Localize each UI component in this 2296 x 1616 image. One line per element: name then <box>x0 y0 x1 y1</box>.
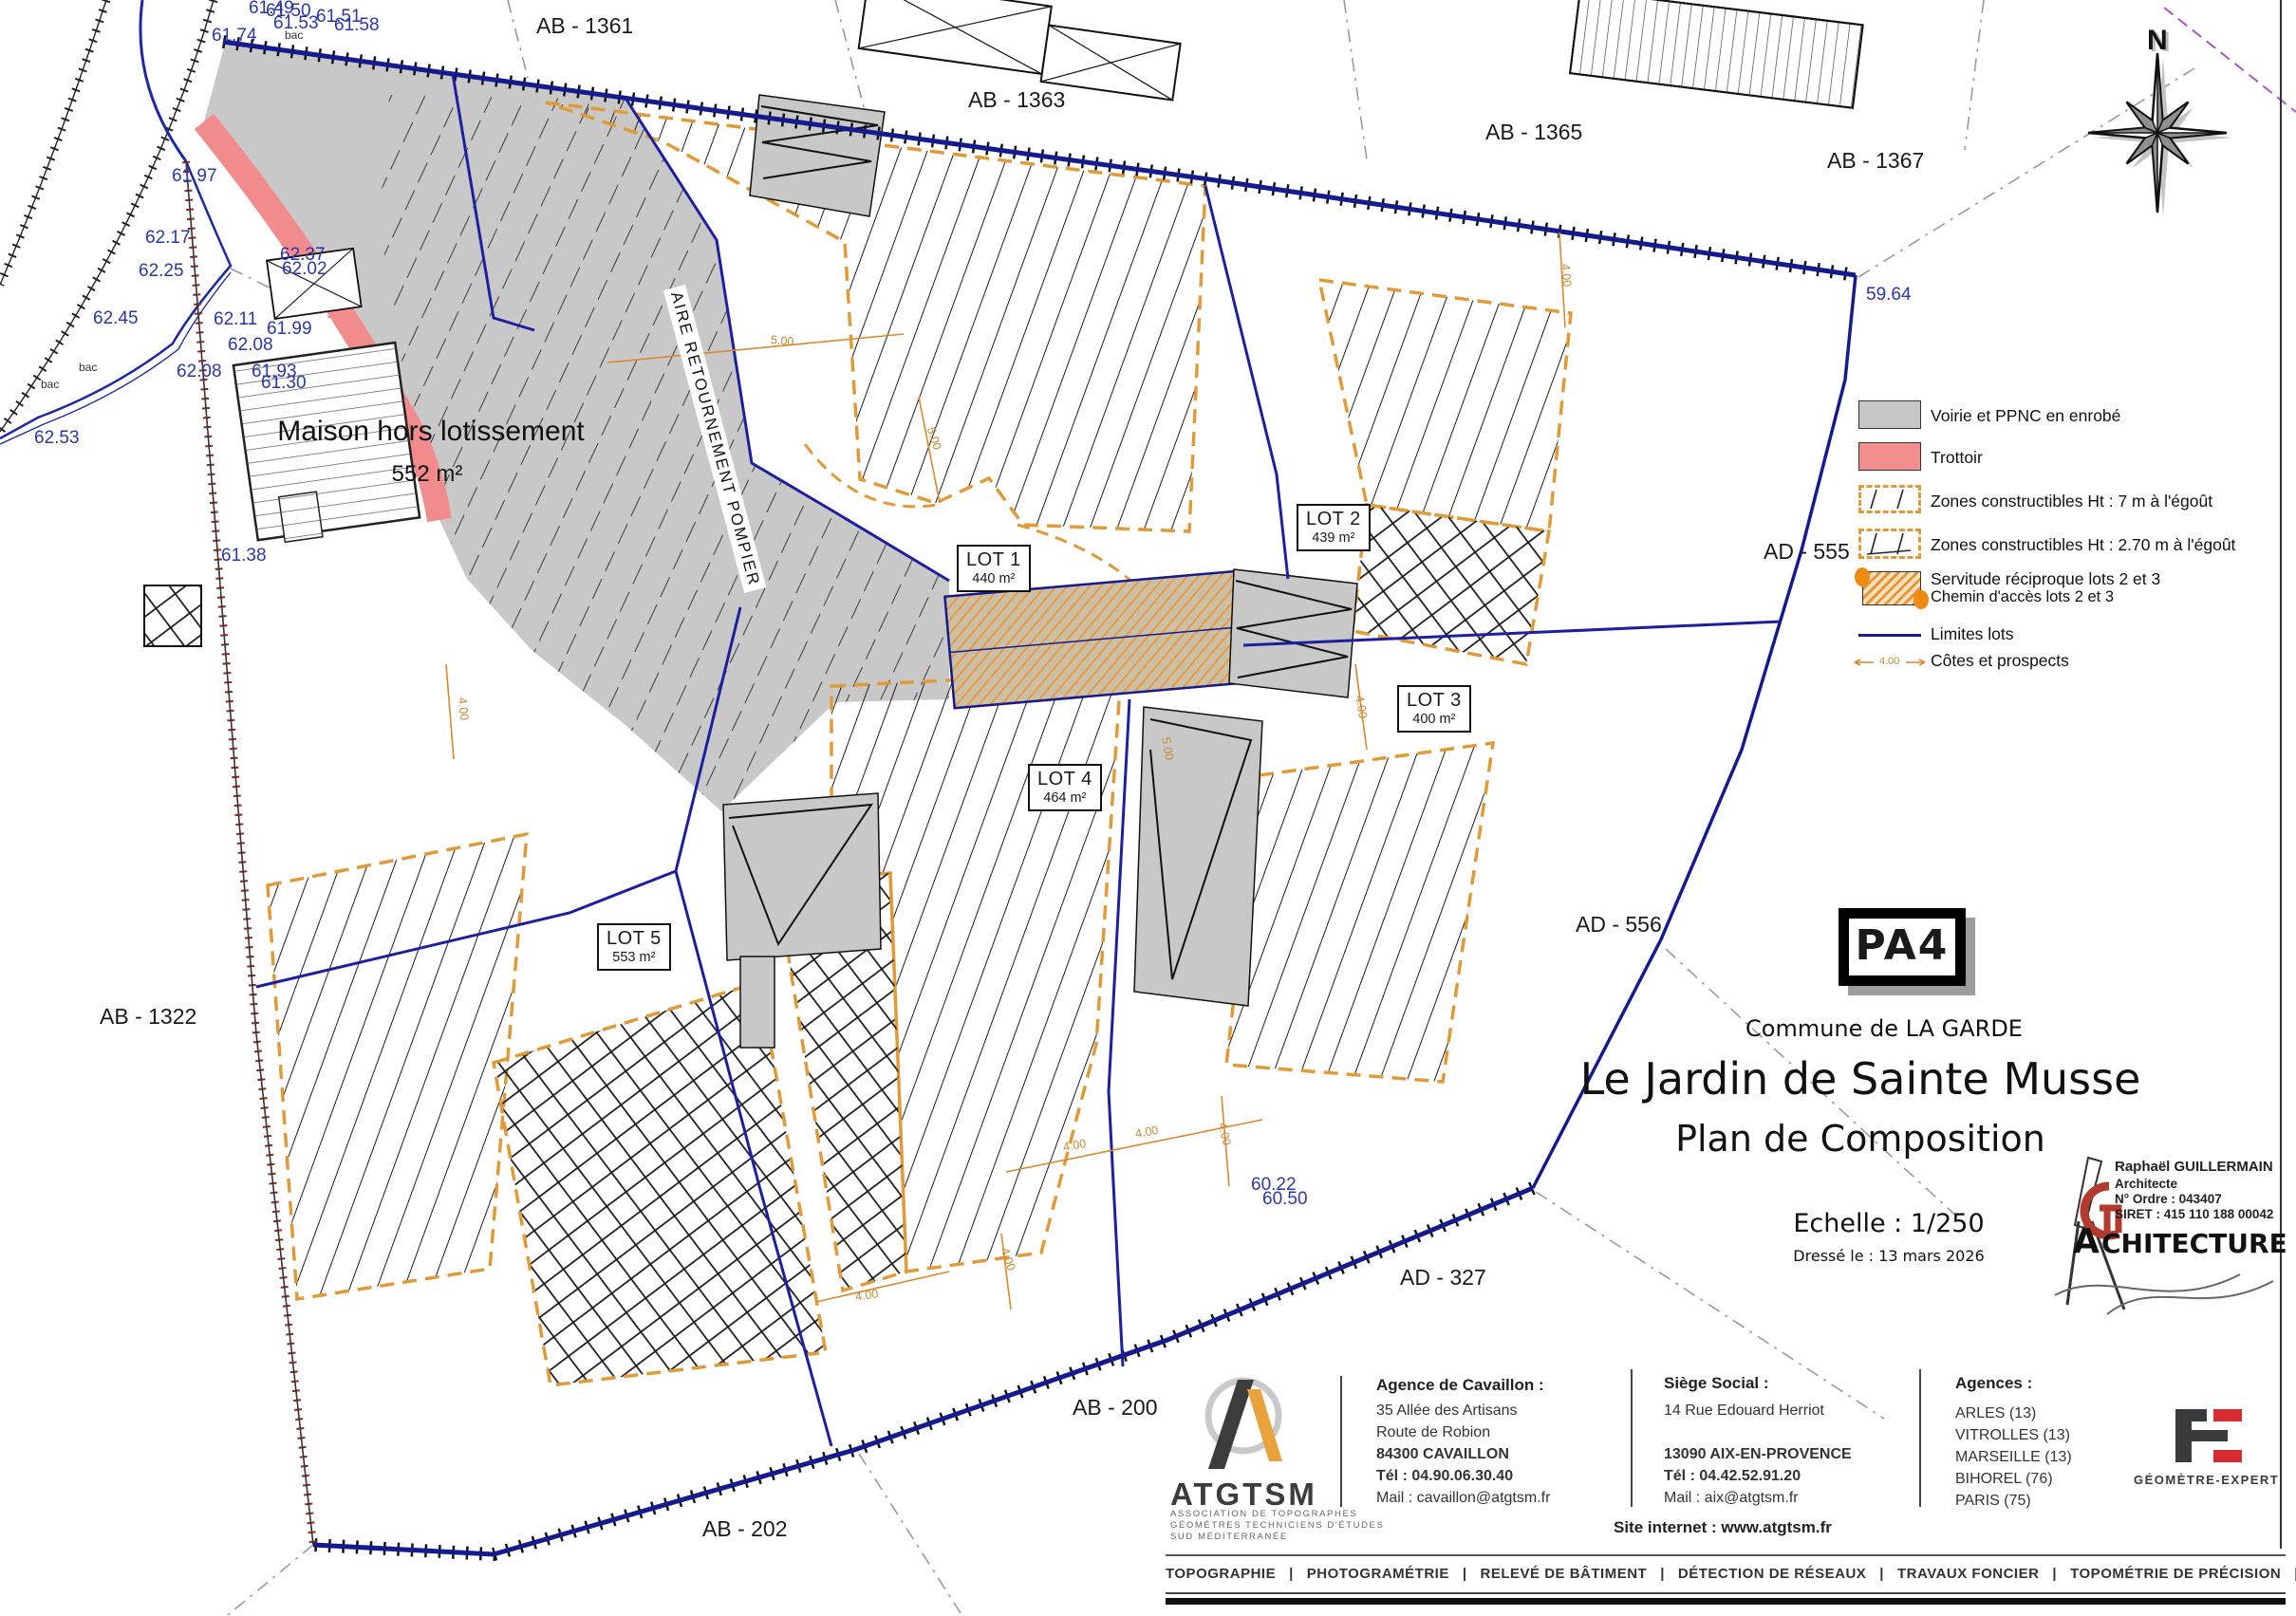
lot5-name: LOT 5 <box>607 928 662 950</box>
elevation-point: 61.97 <box>172 166 217 187</box>
site-plan-drawing <box>0 0 2296 1616</box>
lot5-label: LOT 5 553 m² <box>597 923 671 971</box>
atgtsm-logo-icon <box>1188 1374 1302 1480</box>
lot4-name: LOT 4 <box>1037 769 1092 790</box>
date-label: Dressé le : 13 mars 2026 <box>1699 1247 2079 1265</box>
maison-hors-lotissement-label: Maison hors lotissement <box>254 416 607 448</box>
parcel-label-ab202: AB - 202 <box>702 1516 788 1542</box>
plan-title: Le Jardin de Sainte Musse <box>1533 1053 2188 1105</box>
north-letter: N <box>2147 25 2168 57</box>
legend-swatch-limites <box>1858 634 1921 637</box>
building-ab1363 <box>858 0 1184 100</box>
siege-line3: Tél : 04.42.52.91.20 <box>1664 1468 1801 1485</box>
legend-swatch-zone7 <box>1858 485 1921 513</box>
servitude-dot-icon <box>1913 590 1929 609</box>
dim-label: 4.00 <box>1559 263 1574 287</box>
agences-line2: VITROLLES (13) <box>1955 1427 2070 1444</box>
elevation-point: 61.58 <box>334 15 380 36</box>
legend-label-cotes: Côtes et prospects <box>1931 651 2069 671</box>
atgtsm-sub1: ASSOCIATION DE TOPOGRAPHES <box>1170 1509 1357 1519</box>
architect-name: Raphaël GUILLERMAIN <box>2115 1159 2273 1175</box>
maison-area-label: 552 m² <box>351 461 503 488</box>
legend-cotes-dim: 4.00 <box>1879 656 1899 667</box>
architect-siret: SIRET : 415 110 188 00042 <box>2115 1207 2273 1221</box>
services-bar: TOPOGRAPHIE | PHOTOGRAMÉTRIE | RELEVÉ DE… <box>1166 1554 2286 1592</box>
legend-label-servitude-1: Servitude réciproque lots 2 et 3 <box>1931 569 2160 589</box>
parcel-label-ab1322: AB - 1322 <box>100 1004 196 1030</box>
dim-label: 4.00 <box>456 697 471 720</box>
atgtsm-sub3: SUD MÉDITERRANÉE <box>1170 1532 1288 1542</box>
atgtsm-sub2: GÉOMÈTRES TECHNICIENS D'ÉTUDES <box>1170 1520 1384 1531</box>
utility-dashed-line <box>2164 8 2296 112</box>
legend-swatch-voirie <box>1858 400 1921 429</box>
lot2-area: 439 m² <box>1306 530 1361 547</box>
servitude-dot-icon <box>1855 567 1870 586</box>
footer-divider-1 <box>1340 1376 1342 1507</box>
pa4-badge: PA4 <box>1839 908 1966 986</box>
bac-annotation: bac <box>79 361 97 374</box>
cavaillon-line2: Route de Robion <box>1376 1424 1490 1441</box>
hatched-shed <box>144 585 201 646</box>
parcel-label-ab1363: AB - 1363 <box>968 87 1065 113</box>
architect-role: Architecte <box>2115 1177 2177 1191</box>
elevation-point: 62.25 <box>139 261 184 282</box>
footer-divider-2 <box>1631 1369 1633 1507</box>
lot2-label: LOT 2 439 m² <box>1297 504 1371 551</box>
elevation-point: 62.53 <box>34 428 80 449</box>
architecture-brand-a: A <box>2073 1222 2100 1261</box>
commune-label: Commune de LA GARDE <box>1699 1015 2069 1042</box>
bac-annotation: bac <box>285 28 303 42</box>
north-compass-icon <box>2088 53 2232 217</box>
elevation-point: 61.50 <box>266 1 311 22</box>
lot1-name: LOT 1 <box>966 549 1021 571</box>
elevation-point: 61.99 <box>267 319 312 340</box>
elevation-point: 59.64 <box>1866 285 1912 306</box>
cavaillon-line5: Mail : cavaillon@atgtsm.fr <box>1376 1490 1550 1507</box>
siege-line2: 13090 AIX-EN-PROVENCE <box>1664 1446 1852 1463</box>
siege-heading: Siège Social : <box>1664 1374 1769 1393</box>
elevation-point: 62.08 <box>177 362 222 382</box>
building-ab1365 <box>1570 0 1862 108</box>
parcel-label-ad555: AD - 555 <box>1764 539 1850 565</box>
elevation-point: 61.38 <box>221 546 267 567</box>
parcel-label-ab1367: AB - 1367 <box>1827 148 1924 174</box>
lot-boundary-right <box>1533 275 1856 1188</box>
siege-line1: 14 Rue Edouard Herriot <box>1664 1402 1824 1420</box>
legend-swatch-trottoir <box>1858 442 1921 471</box>
agences-line5: PARIS (75) <box>1955 1493 2031 1510</box>
lot2-name: LOT 2 <box>1306 509 1361 530</box>
elevation-point: 60.50 <box>1262 1189 1308 1210</box>
cavaillon-line4: Tél : 04.90.06.30.40 <box>1376 1468 1513 1485</box>
parcel-label-ab1365: AB - 1365 <box>1485 120 1582 145</box>
siege-line4: Mail : aix@atgtsm.fr <box>1664 1490 1799 1507</box>
geometre-expert-text: GÉOMÈTRE-EXPERT <box>2134 1473 2279 1487</box>
legend-label-limites: Limites lots <box>1931 624 2014 644</box>
legend-label-servitude-2: Chemin d'accès lots 2 et 3 <box>1931 588 2114 606</box>
scale-label: Echelle : 1/250 <box>1699 1209 2079 1238</box>
lot3-area: 400 m² <box>1407 712 1462 728</box>
elevation-point: 62.08 <box>228 335 273 356</box>
agences-heading: Agences : <box>1955 1374 2032 1393</box>
architect-ordre: N° Ordre : 043407 <box>2115 1192 2222 1206</box>
cavaillon-line3: 84300 CAVAILLON <box>1376 1446 1509 1463</box>
architecture-brand-rest: CHITECTURE <box>2101 1228 2287 1259</box>
atgtsm-name: ATGTSM <box>1170 1477 1317 1513</box>
dim-label: 5.00 <box>770 333 793 348</box>
legend-label-zone270: Zones constructibles Ht : 2.70 m à l'égo… <box>1931 535 2235 555</box>
elevation-point: 62.17 <box>145 228 191 249</box>
legend-swatch-zone270 <box>1858 529 1921 559</box>
agences-line3: MARSEILLE (13) <box>1955 1449 2072 1466</box>
elevation-point: 61.30 <box>261 373 307 394</box>
lot1-area: 440 m² <box>966 571 1021 587</box>
site-plan-page: AB - 1361 AB - 1363 AB - 1365 AB - 1367 … <box>0 0 2296 1616</box>
agences-line1: ARLES (13) <box>1955 1405 2036 1422</box>
cavaillon-heading: Agence de Cavaillon : <box>1376 1376 1544 1395</box>
geometre-expert-logo-icon <box>2174 1407 2249 1466</box>
site-internet: Site internet : www.atgtsm.fr <box>1614 1518 1832 1537</box>
parcel-label-ab200: AB - 200 <box>1073 1395 1158 1421</box>
agences-line4: BIHOREL (76) <box>1955 1471 2053 1488</box>
parcel-label-ad327: AD - 327 <box>1400 1265 1486 1291</box>
parcel-label-ab1361: AB - 1361 <box>536 13 633 39</box>
footer-divider-3 <box>1919 1369 1921 1507</box>
elevation-point: 62.11 <box>214 309 257 330</box>
legend-label-zone7: Zones constructibles Ht : 7 m à l'égoût <box>1931 492 2212 511</box>
legend-swatch-servitude <box>1862 571 1921 605</box>
lot3-label: LOT 3 400 m² <box>1397 685 1471 733</box>
lot5-area: 553 m² <box>607 950 662 966</box>
parcel-label-ad556: AD - 556 <box>1576 912 1662 938</box>
legend-label-voirie: Voirie et PPNC en enrobé <box>1931 406 2120 426</box>
legend-label-trottoir: Trottoir <box>1931 448 1983 468</box>
elevation-point: 62.45 <box>93 308 139 329</box>
elevation-point: 61.74 <box>212 26 257 46</box>
lot4-area: 464 m² <box>1037 790 1092 807</box>
bac-annotation: bac <box>41 378 59 391</box>
cavaillon-line1: 35 Allée des Artisans <box>1376 1402 1518 1420</box>
services-rule <box>1166 1592 2286 1594</box>
lot3-name: LOT 3 <box>1407 690 1462 712</box>
lot4-label: LOT 4 464 m² <box>1028 764 1102 811</box>
services-bottom-bar <box>1166 1598 2286 1605</box>
elevation-point: 62.02 <box>282 259 327 280</box>
lot1-label: LOT 1 440 m² <box>957 545 1031 592</box>
